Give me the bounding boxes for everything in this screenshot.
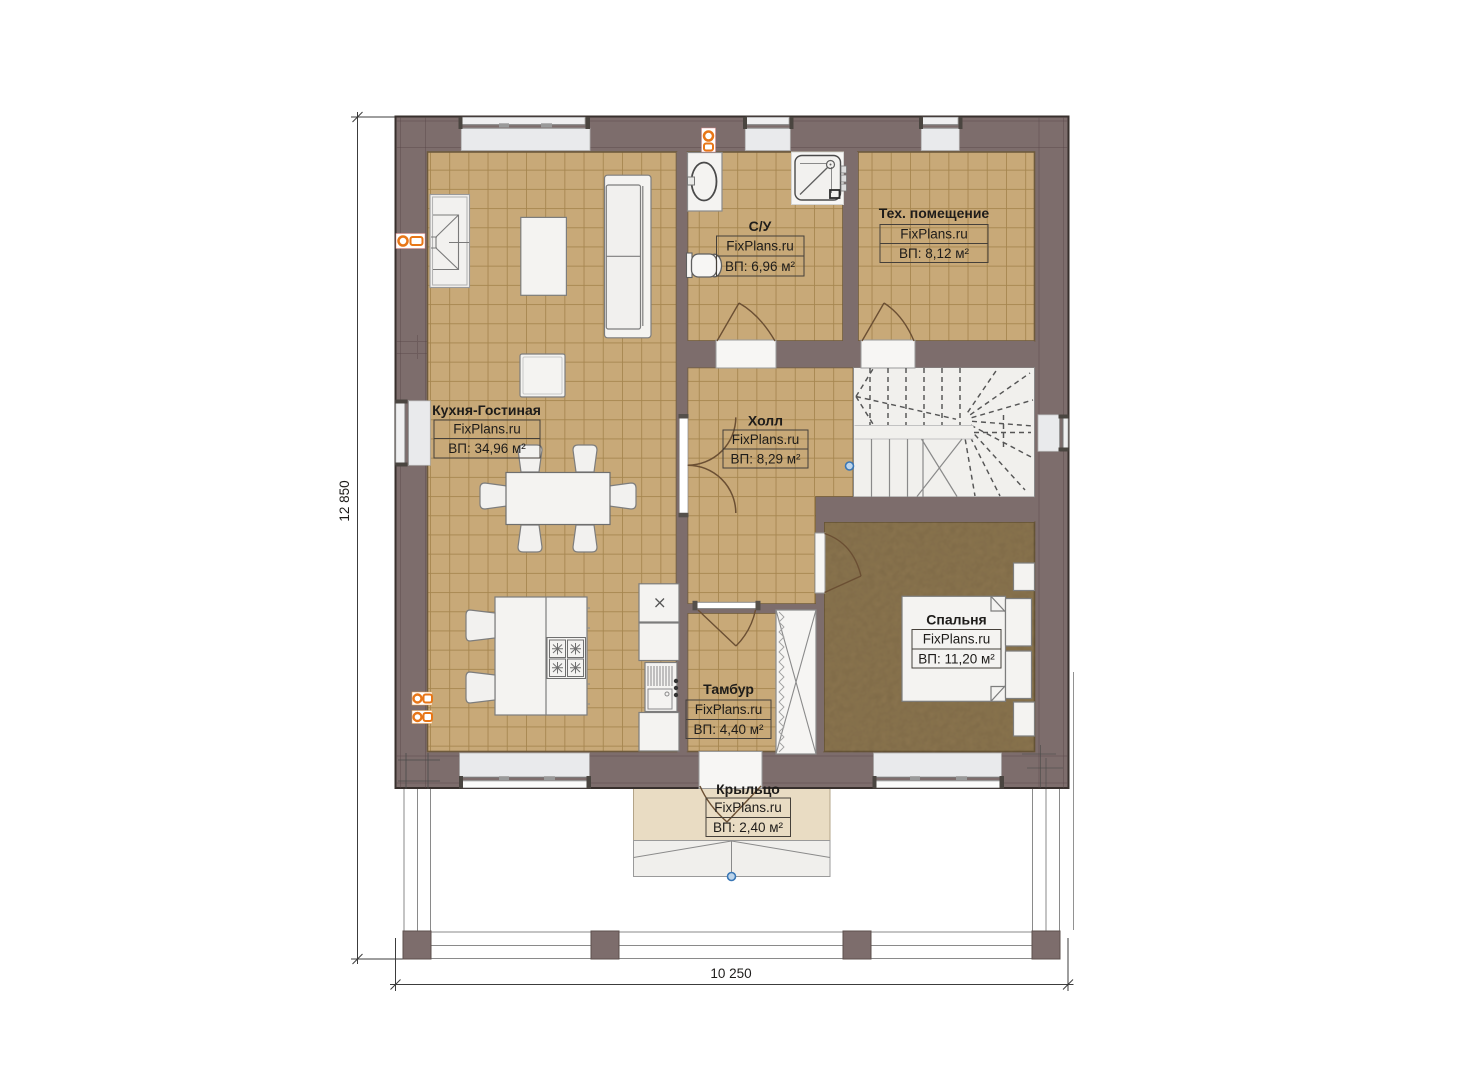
svg-text:ВП: 4,40 м²: ВП: 4,40 м² (693, 722, 764, 737)
svg-text:FixPlans.ru: FixPlans.ru (714, 800, 782, 815)
svg-text:FixPlans.ru: FixPlans.ru (695, 702, 763, 717)
svg-text:Тамбур: Тамбур (703, 681, 754, 697)
svg-text:ВП: 8,12 м²: ВП: 8,12 м² (899, 246, 970, 261)
svg-text:Спальня: Спальня (926, 612, 986, 628)
svg-text:ВП: 6,96 м²: ВП: 6,96 м² (725, 259, 796, 274)
svg-text:FixPlans.ru: FixPlans.ru (726, 239, 794, 254)
svg-text:12 850: 12 850 (337, 480, 352, 521)
svg-text:С/У: С/У (749, 218, 772, 234)
svg-text:10 250: 10 250 (710, 966, 751, 981)
svg-text:Крыльцо: Крыльцо (716, 781, 780, 797)
svg-text:ВП: 34,96 м²: ВП: 34,96 м² (448, 441, 526, 456)
svg-text:FixPlans.ru: FixPlans.ru (732, 432, 800, 447)
svg-text:FixPlans.ru: FixPlans.ru (453, 422, 521, 437)
svg-text:FixPlans.ru: FixPlans.ru (923, 632, 991, 647)
svg-text:FixPlans.ru: FixPlans.ru (900, 227, 968, 242)
svg-text:ВП: 8,29 м²: ВП: 8,29 м² (730, 452, 801, 467)
svg-text:ВП: 11,20 м²: ВП: 11,20 м² (918, 652, 995, 667)
svg-text:Тех. помещение: Тех. помещение (879, 205, 990, 221)
svg-text:Кухня-Гостиная: Кухня-Гостиная (432, 402, 541, 418)
svg-text:ВП: 2,40 м²: ВП: 2,40 м² (713, 820, 784, 835)
svg-text:Холл: Холл (748, 413, 783, 429)
